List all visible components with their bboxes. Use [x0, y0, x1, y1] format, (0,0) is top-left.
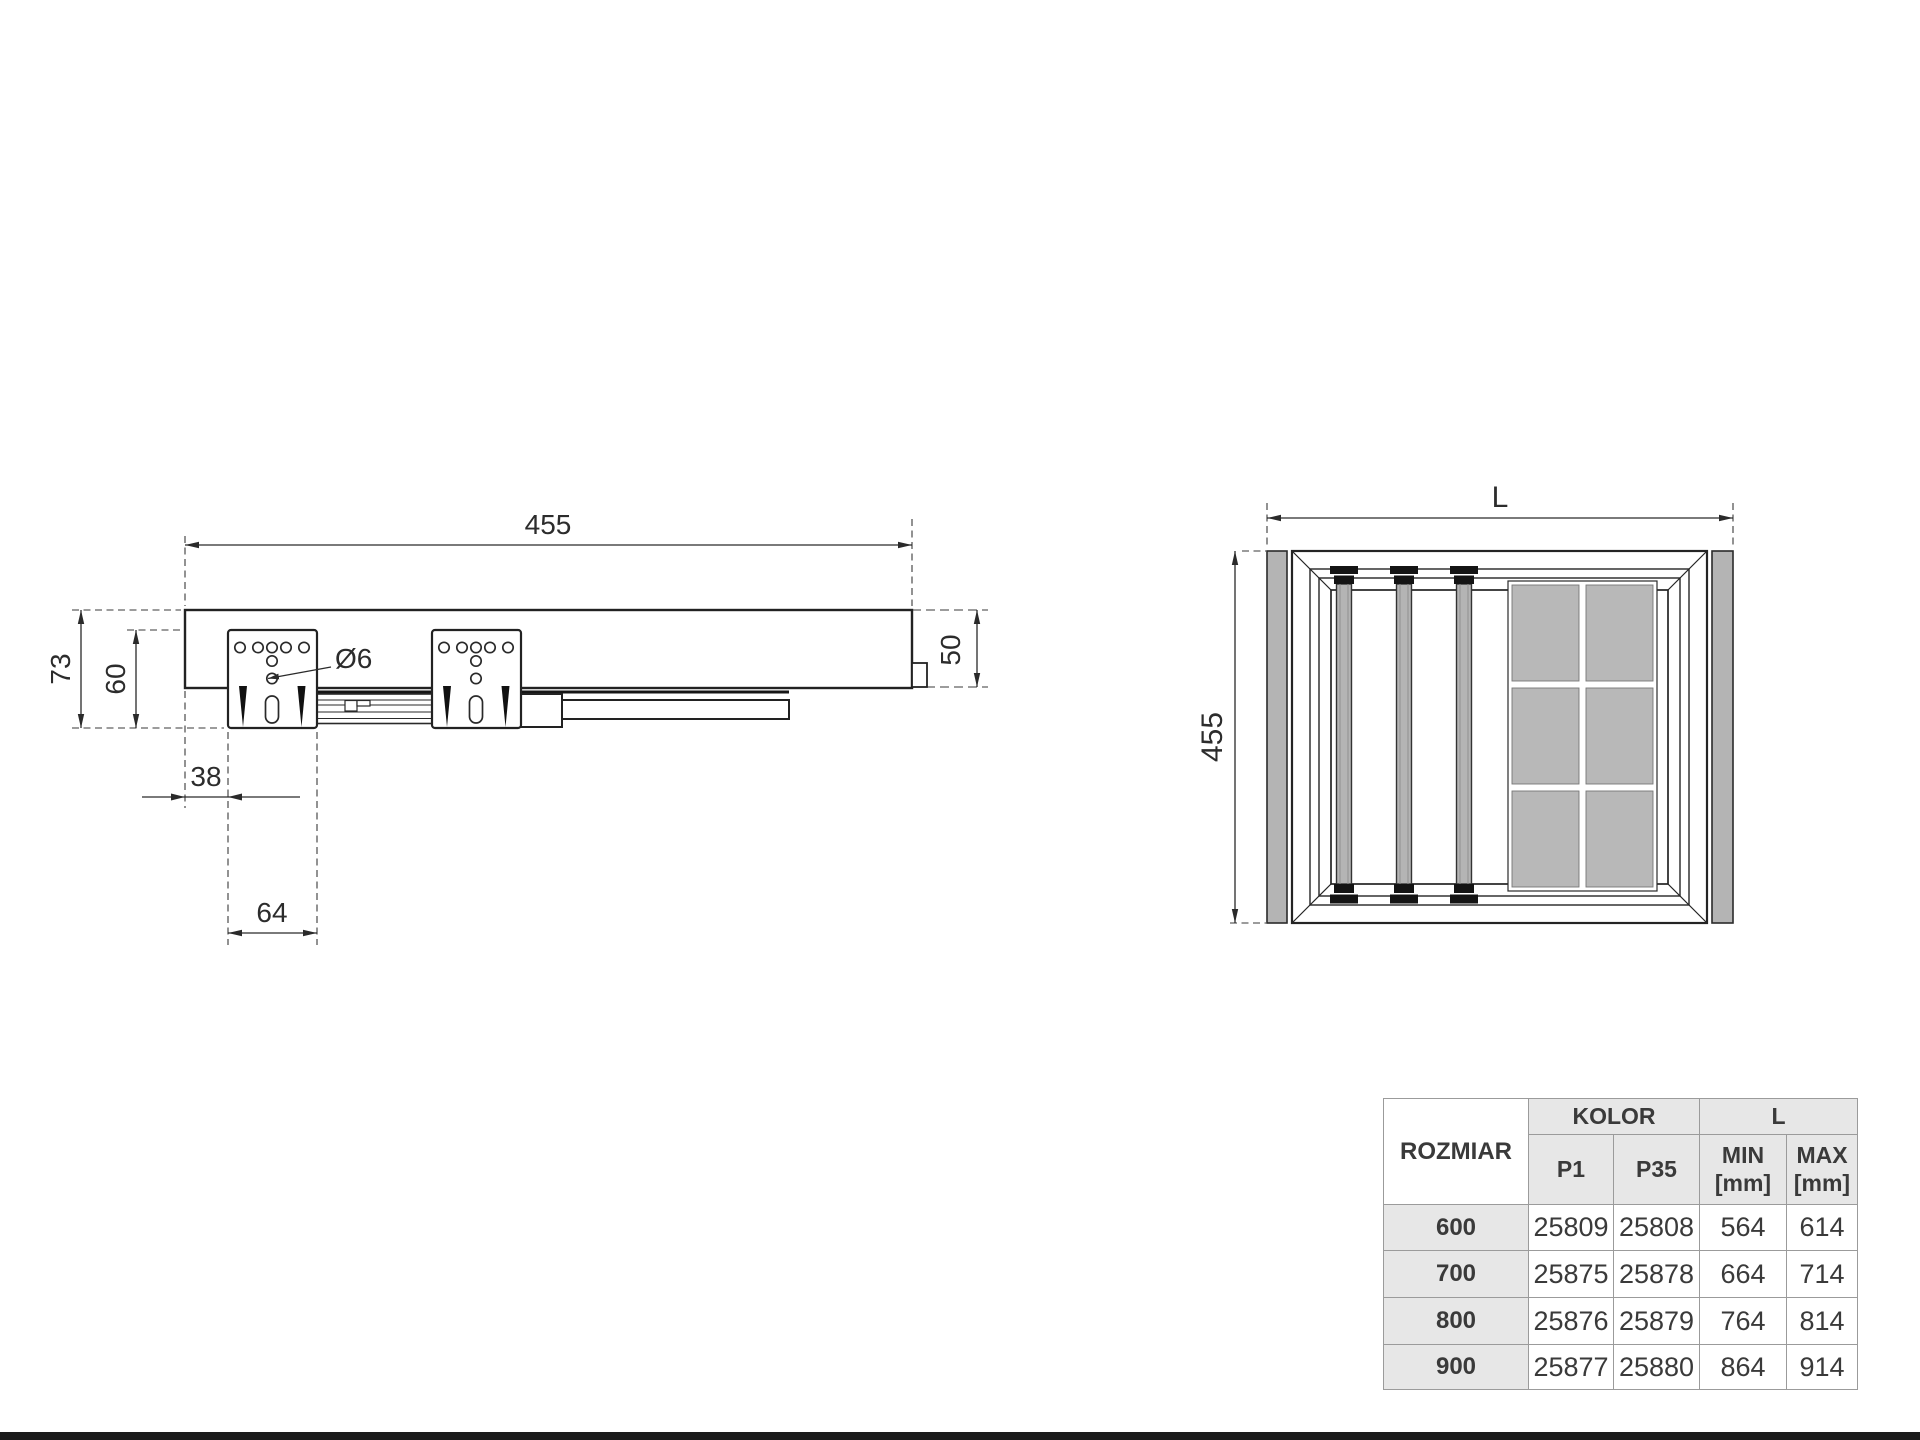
col-group-l: L [1700, 1099, 1858, 1135]
side-view-extension-lines [72, 519, 988, 945]
rail-hanger-bottom [1330, 895, 1358, 904]
table-row: 900 25877 25880 864 914 [1384, 1345, 1858, 1390]
rail-latch-detail [357, 701, 370, 707]
col-header-p35: P35 [1614, 1135, 1700, 1205]
telescopic-rail [317, 692, 789, 727]
col-group-kolor: KOLOR [1529, 1099, 1700, 1135]
p1-cell: 25809 [1529, 1205, 1614, 1251]
rail-hanger-top [1330, 566, 1358, 574]
min-unit: [mm] [1700, 1170, 1786, 1197]
col-header-p1: P1 [1529, 1135, 1614, 1205]
rail-hanger-top [1390, 566, 1418, 574]
col-header-rozmiar: ROZMIAR [1384, 1099, 1529, 1205]
rail-hanger-top [1334, 576, 1354, 585]
dim-bracket-spacing: 64 [228, 897, 317, 933]
rail-hanger-bottom [1334, 884, 1354, 893]
p1-cell: 25876 [1529, 1298, 1614, 1345]
dim-side-width-label: 455 [525, 509, 572, 540]
mounting-bracket-2 [432, 630, 521, 728]
bottom-border-bar [0, 1432, 1920, 1440]
rail-lower-section [562, 700, 789, 719]
dim-top-length: L [1267, 481, 1733, 518]
rail-hanger-bottom [1454, 884, 1474, 893]
spec-table: ROZMIAR KOLOR L P1 P35 MIN [mm] MAX [mm]… [1383, 1098, 1858, 1390]
rail-hanger-top [1394, 576, 1414, 585]
dim-top-depth: 455 [1196, 551, 1235, 923]
min-label: MIN [1722, 1142, 1764, 1168]
p35-cell: 25880 [1614, 1345, 1700, 1390]
table-row: 700 25875 25878 664 714 [1384, 1251, 1858, 1298]
rail-hanger-bottom [1450, 895, 1478, 904]
top-view-drawing: L 455 [1196, 481, 1733, 923]
rear-tab [912, 663, 927, 687]
cabinet-side-left [1267, 551, 1287, 923]
dim-rear-height-label: 50 [935, 634, 966, 665]
dim-top-depth-label: 455 [1196, 712, 1229, 762]
divider-panel [1508, 581, 1657, 891]
dim-top-length-label: L [1492, 481, 1509, 514]
rail-step [521, 694, 562, 727]
rozmiar-cell: 800 [1384, 1298, 1529, 1345]
rail-hanger-top [1454, 576, 1474, 585]
dim-rear-height: 50 [935, 610, 977, 687]
dim-total-height-label: 73 [45, 653, 76, 684]
p35-cell: 25879 [1614, 1298, 1700, 1345]
bracket-slot [266, 696, 279, 723]
hole-diameter-label: Ø6 [335, 643, 372, 674]
rozmiar-cell: 900 [1384, 1345, 1529, 1390]
dim-bracket-spacing-label: 64 [256, 897, 287, 928]
dim-bracket-height-label: 60 [100, 663, 131, 694]
max-cell: 814 [1787, 1298, 1858, 1345]
rozmiar-cell: 600 [1384, 1205, 1529, 1251]
max-cell: 914 [1787, 1345, 1858, 1390]
rail-latch-detail [345, 701, 357, 712]
col-header-max: MAX [mm] [1787, 1135, 1858, 1205]
p35-cell: 25878 [1614, 1251, 1700, 1298]
cabinet-side-right [1712, 551, 1733, 923]
mounting-bracket-1 [228, 630, 317, 728]
rail-hanger-top [1450, 566, 1478, 574]
min-cell: 564 [1700, 1205, 1787, 1251]
dim-side-width: 455 [185, 509, 912, 545]
rail-hanger-bottom [1390, 895, 1418, 904]
min-cell: 664 [1700, 1251, 1787, 1298]
p35-cell: 25808 [1614, 1205, 1700, 1251]
max-cell: 714 [1787, 1251, 1858, 1298]
dim-front-offset: 38 [142, 761, 300, 801]
min-cell: 764 [1700, 1298, 1787, 1345]
dim-total-height: 73 [45, 610, 81, 728]
side-view-drawing: 455 73 60 38 64 50 [45, 509, 988, 945]
dim-bracket-height: 60 [100, 630, 136, 728]
col-header-min: MIN [mm] [1700, 1135, 1787, 1205]
catalog-page: 455 73 60 38 64 50 [0, 0, 1920, 1440]
p1-cell: 25877 [1529, 1345, 1614, 1390]
min-cell: 864 [1700, 1345, 1787, 1390]
max-unit: [mm] [1787, 1170, 1857, 1197]
dim-front-offset-label: 38 [190, 761, 221, 792]
table-row: 800 25876 25879 764 814 [1384, 1298, 1858, 1345]
rozmiar-cell: 700 [1384, 1251, 1529, 1298]
table-row: 600 25809 25808 564 614 [1384, 1205, 1858, 1251]
max-label: MAX [1796, 1142, 1847, 1168]
p1-cell: 25875 [1529, 1251, 1614, 1298]
bracket-slot [470, 696, 483, 723]
max-cell: 614 [1787, 1205, 1858, 1251]
rail-hanger-bottom [1394, 884, 1414, 893]
